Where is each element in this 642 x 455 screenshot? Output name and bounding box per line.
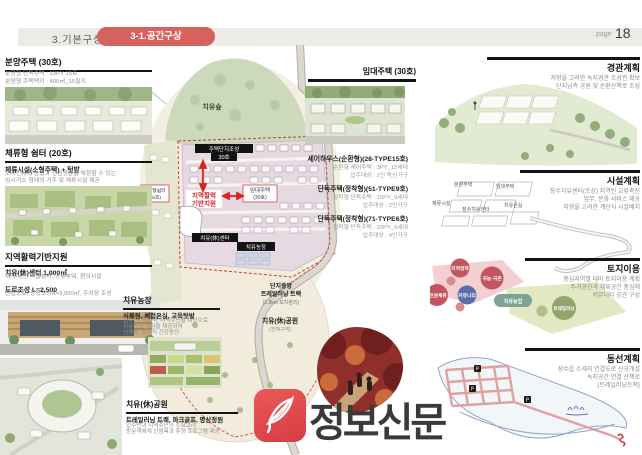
box4-render-image bbox=[0, 358, 122, 455]
detached1-line2: 입주대상 : 2인가구 bbox=[296, 202, 408, 210]
newspaper-logo-icon bbox=[254, 389, 306, 442]
farm-band-label: 치유농장 bbox=[246, 243, 266, 251]
vitality-label-1: 지역활력 bbox=[192, 191, 216, 200]
rental-callout-header: 임대주택 (30호) bbox=[308, 66, 416, 82]
rental-callout-title: 임대주택 (30호) bbox=[308, 66, 416, 77]
detached1-line1: 정착형 단독주택 : 15PY_9세대 bbox=[296, 194, 408, 202]
forest-area bbox=[165, 59, 308, 153]
rental-count: (30호) bbox=[253, 195, 267, 201]
box3-item2-desc: 진입도로, 광장조성A=3,000㎡, 주차장 조성 bbox=[5, 291, 112, 299]
track-line3: (1.8km 보차분리) bbox=[263, 299, 300, 306]
facility-label-4: 장수치유센터 bbox=[462, 206, 490, 213]
park-callout-title: 치유(休)공원 bbox=[126, 399, 238, 414]
box1-line1: 분양형 단독주택 : 23PY 15호 bbox=[5, 71, 77, 79]
landuse-bubble-4: 전원체류 bbox=[430, 292, 447, 299]
farm-callout-title: 치유농장 bbox=[123, 295, 220, 310]
housing-count-label: 30호 bbox=[218, 154, 229, 161]
forest-label: 치유숲 bbox=[202, 102, 222, 111]
housing-band-label: 주택단지조성 bbox=[209, 145, 239, 153]
landscape-title: 경관계획 bbox=[520, 61, 640, 74]
facility-bar bbox=[520, 170, 640, 173]
landuse-bubble-2: 귀농·귀촌 bbox=[482, 275, 502, 282]
share-house-title: 셰어하우스(순환형)(28-TYPE15호) bbox=[296, 153, 408, 163]
track-line2: 트레일러닝 트랙 bbox=[261, 290, 301, 298]
box1-title: 분양주택 (30호) bbox=[5, 56, 152, 72]
landuse-bubble-3: 커뮤니티 bbox=[458, 292, 476, 299]
landscape-bar bbox=[487, 57, 640, 60]
circulation-desc3: (트레일러닝트랙) bbox=[505, 382, 640, 390]
detached2-line1: 정착형 단독주택 : 23PY_6세대 bbox=[296, 224, 408, 232]
tab-chip[interactable]: 3-1.공간구상 bbox=[97, 27, 215, 46]
park-sub-label: (전체구역) bbox=[269, 326, 291, 333]
feather-icon bbox=[254, 389, 306, 442]
box1-line2: 분양형 주택택지 : 400㎡_15필지 bbox=[5, 79, 86, 87]
detached1-title: 단독주택(정착형)(51-TYPE9호) bbox=[296, 183, 408, 193]
facility-title: 시설계획 bbox=[520, 174, 640, 187]
rental-label: 임대주택 bbox=[250, 186, 270, 194]
landuse-title: 토지이용 bbox=[525, 262, 640, 275]
box2-render-image bbox=[5, 186, 152, 246]
landuse-bar bbox=[525, 258, 640, 261]
box1-render-image bbox=[5, 87, 152, 144]
park-callout-desc2: 방문객에게 산림욕과 휴양 프로그램 제공 bbox=[126, 429, 220, 437]
box2-title: 체류형 쉼터 (20호) bbox=[5, 147, 152, 163]
box2-desc2: 임시거소 형태의 거주 및 체류시설 제공 bbox=[5, 178, 100, 186]
park-label: 치유(休)공원 bbox=[262, 316, 298, 325]
landscape-desc2: 단지남측 공원 및 순환산책로 조성 bbox=[500, 83, 640, 91]
share-house-line2: 입주대상 : 1인 독신가구 bbox=[296, 172, 408, 180]
share-house-callout: 셰어하우스(순환형)(28-TYPE15호) 순환형 셰어주택 : 3PY_15… bbox=[296, 153, 408, 180]
section-label: 3.기본구상 bbox=[52, 31, 103, 46]
landuse-bubble-6: 트레일러닝 bbox=[553, 305, 574, 312]
plan-document-page: 3.기본구상 3-1.공간구상 page 18 치유숲 bbox=[0, 0, 642, 455]
circulation-title: 동선계획 bbox=[525, 352, 640, 365]
page-word: page bbox=[596, 31, 612, 38]
circulation-bar bbox=[525, 348, 640, 351]
detached2-line2: 입주대상 : 4인가구 bbox=[296, 232, 408, 240]
rental-render-image bbox=[305, 86, 405, 144]
center-band-label: 치유(休)센터 bbox=[200, 234, 229, 242]
farm-render-image bbox=[148, 337, 222, 388]
box3-title: 지역활력기반지원 bbox=[5, 251, 152, 267]
share-house-line1: 순환형 셰어주택 : 3PY_15세대 bbox=[296, 164, 408, 172]
detached2-title: 단독주택(정착형)(71-TYPE6호) bbox=[296, 213, 408, 223]
detached1-callout: 단독주택(정착형)(51-TYPE9호) 정착형 단독주택 : 15PY_9세대… bbox=[296, 183, 408, 210]
facility-desc3: 지형을 고려한 계단식 시설배치 bbox=[500, 204, 640, 212]
facility-label-3: 체류시설 bbox=[432, 200, 451, 207]
newspaper-logo-text: 정보신문 bbox=[309, 390, 444, 448]
track-line1: 단지중앙 bbox=[270, 282, 293, 290]
rental-callout-bar bbox=[308, 79, 416, 82]
landuse-bubble-1: 지역정착 bbox=[451, 265, 469, 272]
facility-label-1: 분양주택 bbox=[454, 181, 473, 188]
box3-item1-desc: 워케이션, 마을쉼터, 공유부엌, 편의시설 bbox=[5, 274, 102, 282]
vitality-label-2: 기반지원 bbox=[192, 199, 216, 208]
landuse-desc3: 커뮤니티 공간 구성 bbox=[505, 292, 640, 300]
page-number: 18 bbox=[615, 25, 631, 41]
detached2-callout: 단독주택(정착형)(71-TYPE6호) 정착형 단독주택 : 23PY_6세대… bbox=[296, 213, 408, 240]
center-building bbox=[180, 206, 202, 236]
